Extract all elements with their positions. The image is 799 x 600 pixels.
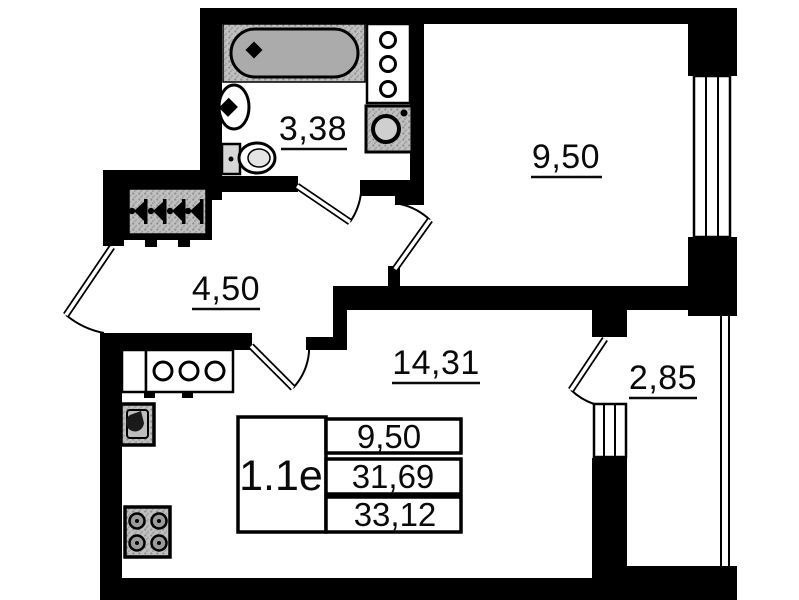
floor-plan-drawing: 3,38 9,50 4,50 14,31 2,85 1.1e 9,50 31,6… xyxy=(0,0,799,600)
unit-type-label: 1.1e xyxy=(239,452,323,500)
hallway-area-label: 4,50 xyxy=(192,270,260,308)
living-area-value: 31,69 xyxy=(352,458,435,495)
washing-machine-icon xyxy=(366,106,412,152)
balcony-area-label: 2,85 xyxy=(629,359,697,397)
balcony-glazing-icon xyxy=(721,312,729,568)
total-area-value: 33,12 xyxy=(354,496,437,533)
stove-icon xyxy=(125,507,170,557)
toilet-icon xyxy=(222,143,275,174)
floor-plan: 3,38 9,50 4,50 14,31 2,85 1.1e 9,50 31,6… xyxy=(0,0,799,600)
room-area-label: 9,50 xyxy=(532,138,600,176)
sink-icon xyxy=(219,85,249,129)
room-area-value: 9,50 xyxy=(357,418,421,455)
shelf-cabinet-icon xyxy=(367,24,410,103)
wardrobe-icon xyxy=(122,183,212,247)
kitchen-living-area-label: 14,31 xyxy=(392,344,480,382)
unit-info-table: 1.1e 9,50 31,69 33,12 xyxy=(238,417,461,533)
kitchen-door-icon xyxy=(251,343,309,388)
room-door-icon xyxy=(395,204,430,269)
room-window-icon xyxy=(694,76,730,237)
balcony-door-icon xyxy=(571,339,605,404)
kitchen-sink-icon xyxy=(121,404,154,445)
kitchen-counter-icon xyxy=(122,350,233,398)
balcony-window-icon xyxy=(594,404,626,457)
entrance-door-icon xyxy=(66,247,112,333)
bathtub-icon xyxy=(223,24,365,82)
bathroom-area-label: 3,38 xyxy=(279,110,347,148)
bathroom-door-icon xyxy=(297,186,361,222)
